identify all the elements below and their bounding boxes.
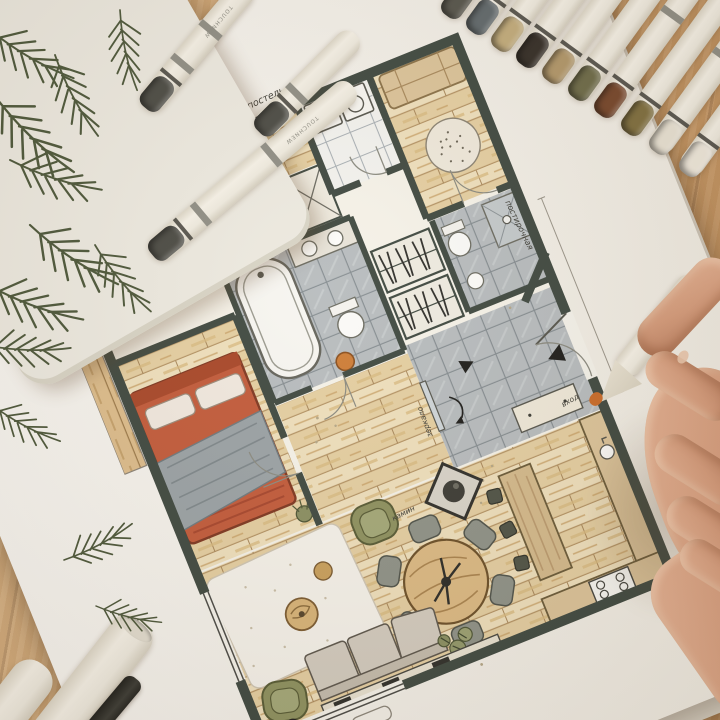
marker-band [712, 47, 720, 67]
marker-band [260, 142, 283, 167]
photo-scene: СМ СШ [0, 0, 720, 720]
marker-band [170, 53, 194, 75]
marker-band [190, 201, 213, 226]
marker-band [660, 5, 684, 25]
